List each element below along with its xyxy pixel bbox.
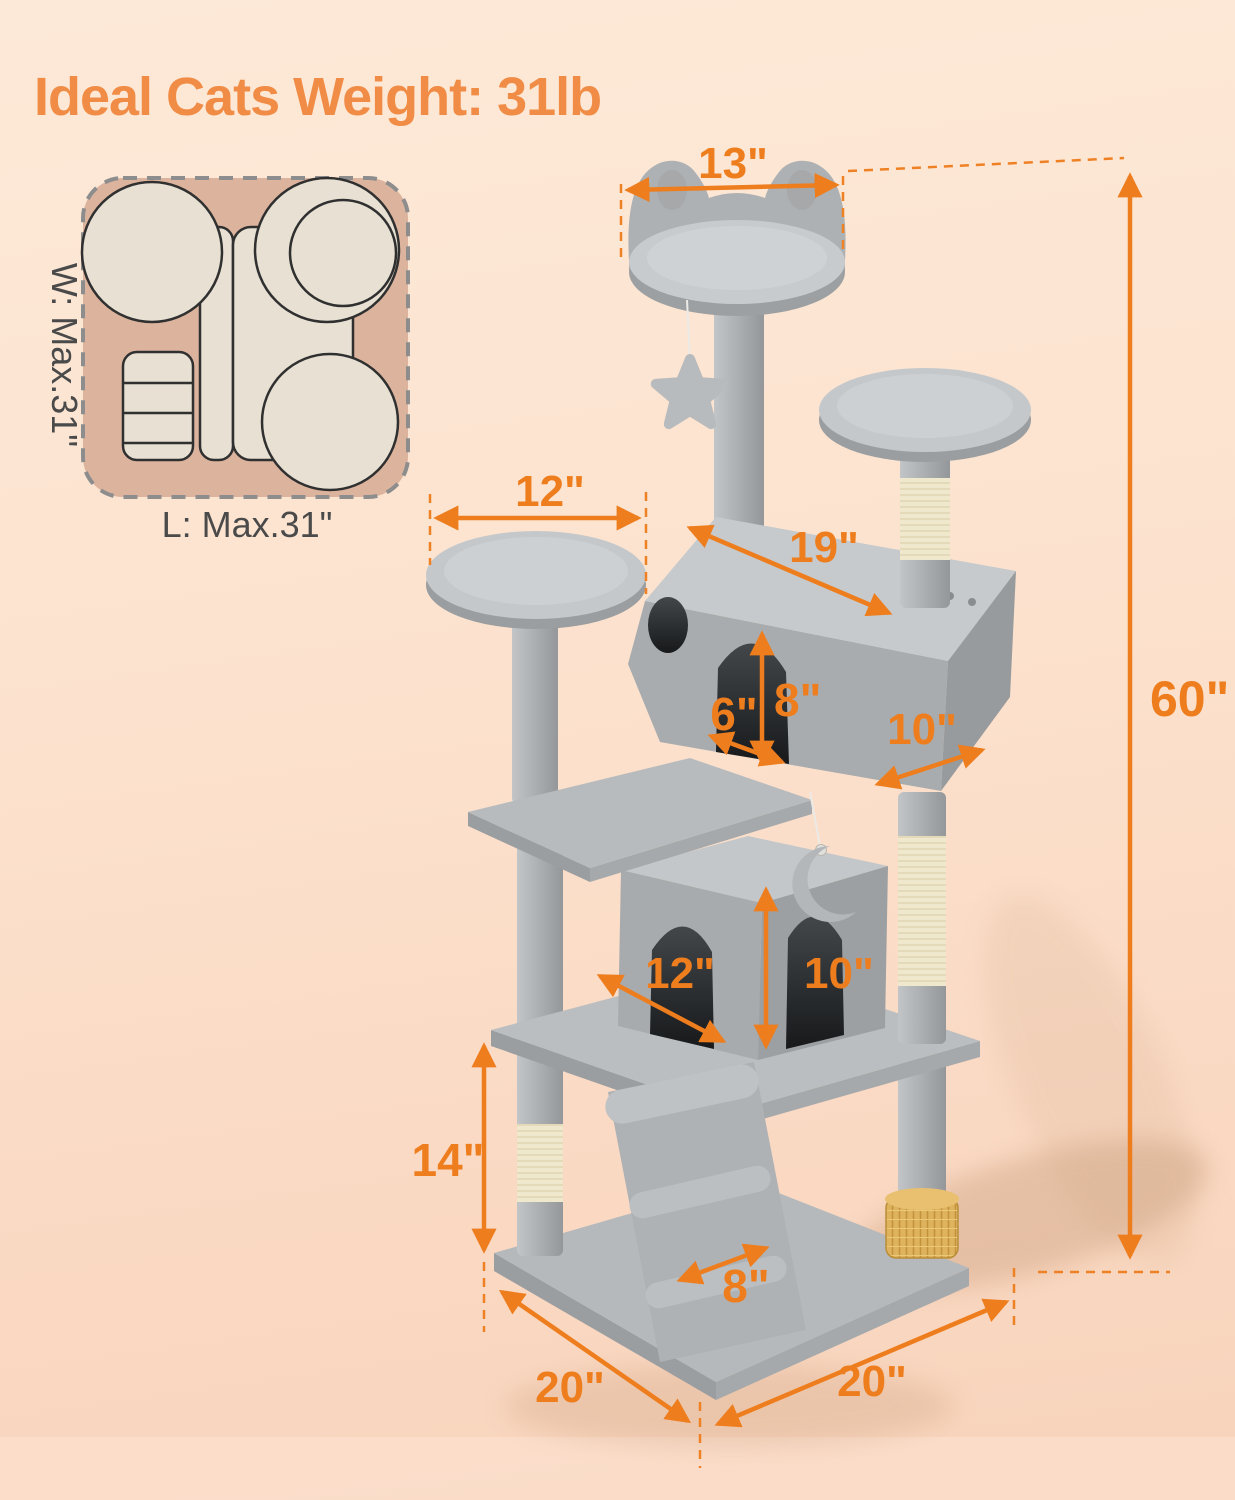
svg-text:6": 6" (710, 688, 757, 740)
left-round-platform (426, 531, 646, 629)
svg-text:10": 10" (804, 949, 874, 998)
svg-text:13": 13" (698, 139, 768, 188)
svg-text:8": 8" (774, 674, 821, 726)
left-platform-post (512, 612, 558, 804)
product-dimension-image: Ideal Cats Weight: 31lb (0, 0, 1235, 1500)
footprint-length-label: L: Max.31" (162, 504, 333, 545)
svg-text:10": 10" (887, 705, 957, 754)
dimension-lower-post-height: 14" (412, 1046, 485, 1332)
svg-text:12": 12" (645, 949, 715, 998)
svg-text:60": 60" (1150, 671, 1229, 727)
svg-text:12": 12" (515, 467, 585, 516)
lower-right-post (898, 1058, 946, 1200)
lower-condo (618, 836, 888, 1060)
top-perch-post (714, 292, 764, 552)
cat-tree-diagram: W: Max.31" L: Max.31" (0, 0, 1235, 1500)
grooming-brush (885, 1188, 959, 1258)
svg-text:14": 14" (412, 1134, 485, 1186)
footprint-width-label: W: Max.31" (44, 263, 85, 447)
footprint-diagram: W: Max.31" L: Max.31" (44, 178, 408, 545)
star-toy (656, 300, 724, 424)
svg-text:8": 8" (722, 1260, 769, 1312)
svg-text:19": 19" (789, 523, 859, 572)
upper-condo-peephole (648, 597, 688, 653)
svg-text:20": 20" (837, 1357, 907, 1406)
svg-text:20": 20" (535, 1363, 605, 1412)
right-round-platform (819, 368, 1031, 462)
